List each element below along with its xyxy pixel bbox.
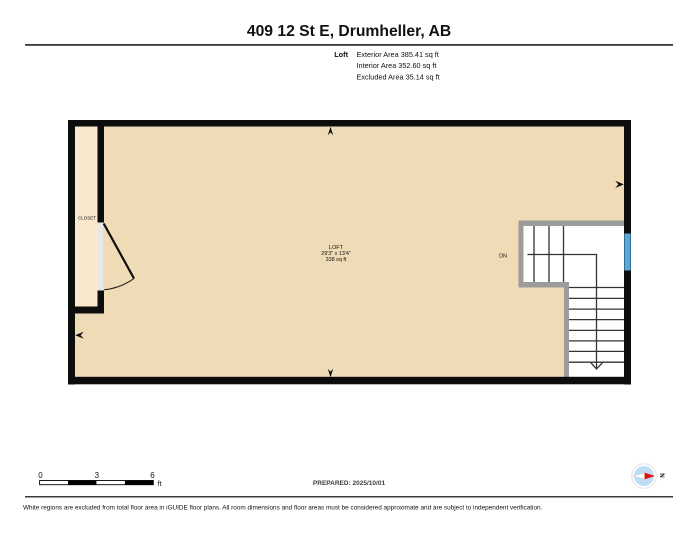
svg-text:0: 0 — [38, 471, 43, 480]
svg-text:LOFT: LOFT — [329, 245, 344, 251]
svg-text:6: 6 — [150, 471, 155, 480]
svg-text:DN: DN — [499, 253, 507, 259]
svg-text:409 12 St E, Drumheller, AB: 409 12 St E, Drumheller, AB — [247, 23, 451, 40]
svg-text:3: 3 — [95, 471, 100, 480]
svg-text:Excluded Area 35.14 sq ft: Excluded Area 35.14 sq ft — [357, 72, 440, 81]
svg-text:Interior Area 352.60 sq ft: Interior Area 352.60 sq ft — [357, 61, 437, 70]
svg-text:CLOSET: CLOSET — [78, 216, 96, 221]
svg-text:White regions are excluded fro: White regions are excluded from total fl… — [23, 505, 543, 512]
svg-text:PREPARED: 2025/10/01: PREPARED: 2025/10/01 — [313, 480, 386, 487]
svg-text:N: N — [658, 473, 665, 478]
svg-text:338 sq ft: 338 sq ft — [326, 257, 347, 263]
svg-text:Loft: Loft — [334, 50, 348, 59]
svg-text:Exterior Area 385.41 sq ft: Exterior Area 385.41 sq ft — [357, 50, 439, 59]
svg-text:ft: ft — [158, 479, 162, 488]
